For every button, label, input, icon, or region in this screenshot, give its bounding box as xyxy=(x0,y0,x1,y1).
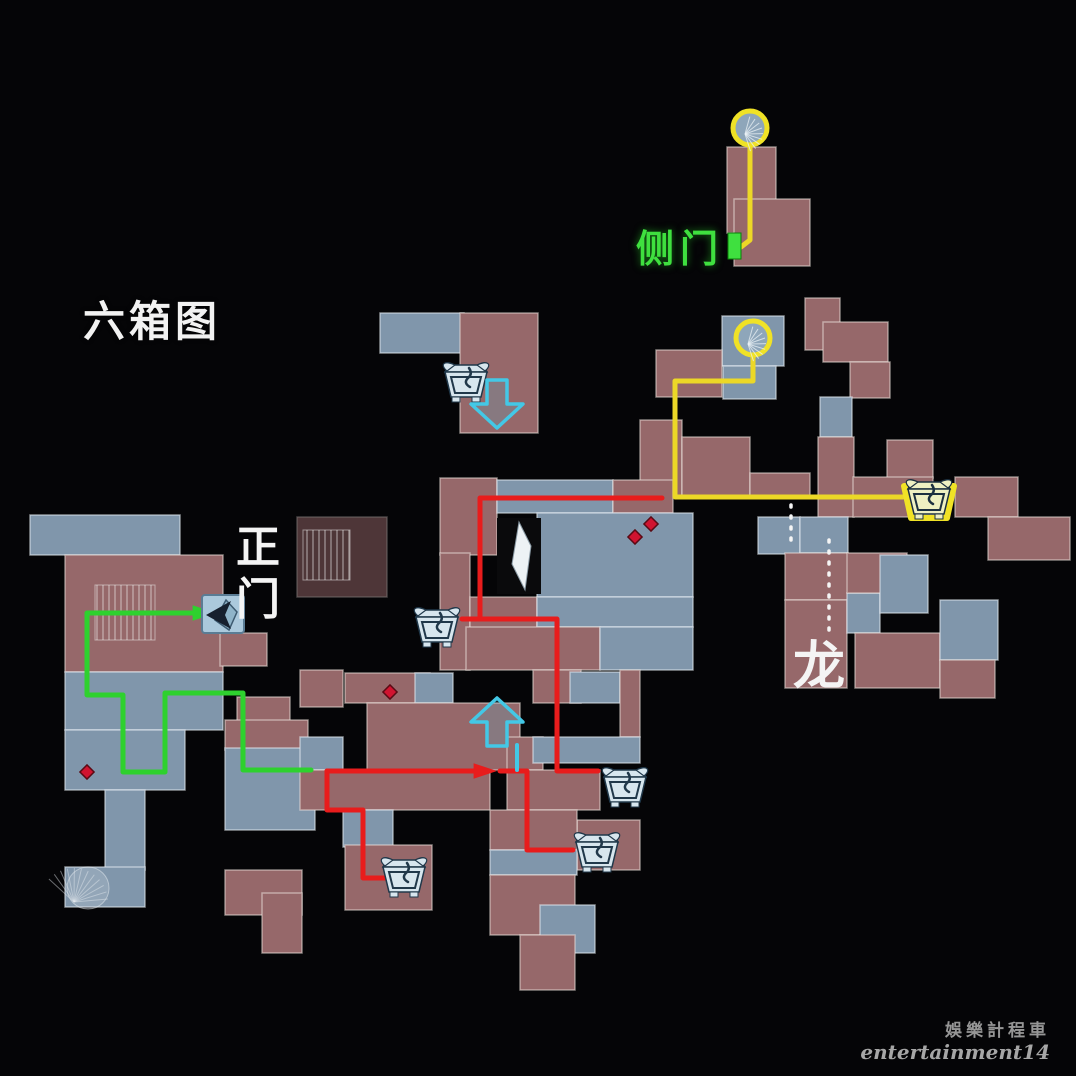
map-room xyxy=(850,362,890,398)
map-room xyxy=(380,313,464,353)
watermark: 娛樂計程車 entertainment14 xyxy=(860,1022,1050,1063)
item-box-icon-highlighted xyxy=(904,480,954,519)
map-room xyxy=(520,935,575,990)
item-box-icon xyxy=(602,768,647,807)
map-room xyxy=(225,720,308,750)
map-room xyxy=(880,555,928,613)
map-room xyxy=(758,517,800,554)
map-room xyxy=(600,627,693,670)
item-box-icon xyxy=(381,858,426,897)
map-room xyxy=(855,633,940,688)
map-room xyxy=(682,437,750,497)
stairs-hatch xyxy=(303,530,350,580)
side-door-label: 侧门 xyxy=(636,218,724,273)
map-room xyxy=(507,770,600,810)
map-room xyxy=(823,322,888,362)
main-door-label: 正门 xyxy=(236,522,286,626)
map-room xyxy=(30,515,180,555)
dragon-label: 龙 xyxy=(793,624,845,699)
map-room xyxy=(818,437,854,517)
map-room xyxy=(847,593,880,633)
map-room xyxy=(734,199,810,266)
map-room xyxy=(988,517,1070,560)
map-room xyxy=(955,477,1018,517)
map-room xyxy=(800,517,848,553)
map-room xyxy=(940,660,995,698)
map-room xyxy=(490,850,577,875)
item-box-icon xyxy=(574,833,619,872)
map-room xyxy=(785,553,848,600)
map-room xyxy=(537,513,693,597)
player-knife-marker xyxy=(497,518,541,594)
map-room xyxy=(750,473,810,497)
spiral-fan-drawing xyxy=(49,867,109,909)
map-room xyxy=(220,633,267,666)
map-room xyxy=(820,397,852,437)
map-room xyxy=(440,478,497,555)
map-room xyxy=(300,737,343,770)
side-door-marker xyxy=(728,233,741,259)
map-room xyxy=(537,597,693,627)
map-room xyxy=(105,790,145,870)
map-room xyxy=(300,670,343,707)
spiral-stairs-icon xyxy=(733,111,767,151)
item-box-icon xyxy=(414,608,459,647)
watermark-cn: 娛樂計程車 xyxy=(860,1022,1050,1041)
game-map-screenshot: 六箱图 侧门 正门 龙 娛樂計程車 entertainment14 xyxy=(0,0,1076,1076)
item-box-icon xyxy=(443,363,488,402)
map-room xyxy=(343,810,393,847)
map-room xyxy=(570,672,620,703)
map-room xyxy=(262,893,302,953)
map-room xyxy=(415,673,453,703)
map-room xyxy=(940,600,998,660)
map-room xyxy=(620,670,640,737)
map-room xyxy=(466,627,600,670)
watermark-en: entertainment14 xyxy=(860,1041,1050,1063)
map-title-label: 六箱图 xyxy=(83,288,221,349)
map-room xyxy=(656,350,722,397)
map-room xyxy=(490,810,577,850)
map-canvas xyxy=(0,0,1076,1076)
map-room xyxy=(533,737,640,763)
map-room xyxy=(887,440,933,478)
